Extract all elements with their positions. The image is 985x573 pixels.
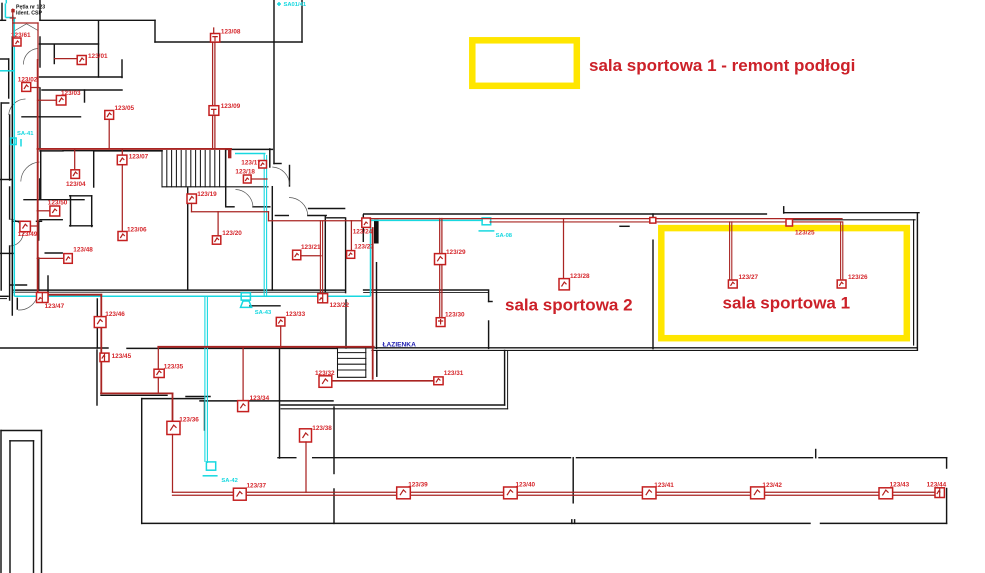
svg-text:123/35: 123/35 bbox=[164, 364, 184, 371]
svg-text:123/32: 123/32 bbox=[315, 370, 335, 377]
svg-text:123/20: 123/20 bbox=[222, 230, 242, 237]
svg-text:123/23: 123/23 bbox=[354, 244, 374, 251]
svg-text:123/21: 123/21 bbox=[301, 244, 321, 251]
svg-text:123/24: 123/24 bbox=[353, 228, 373, 235]
svg-text:ŁAZIENKA: ŁAZIENKA bbox=[383, 342, 417, 349]
svg-text:Ident. CSP: Ident. CSP bbox=[16, 11, 42, 17]
svg-text:123/47: 123/47 bbox=[45, 303, 65, 310]
svg-text:sala sportowa 1: sala sportowa 1 bbox=[723, 294, 851, 313]
svg-text:123/30: 123/30 bbox=[445, 312, 465, 319]
svg-text:123/48: 123/48 bbox=[73, 246, 93, 253]
svg-text:123/25: 123/25 bbox=[795, 230, 815, 237]
svg-text:SA-08: SA-08 bbox=[496, 233, 513, 239]
svg-text:123/61: 123/61 bbox=[11, 32, 31, 39]
svg-text:123/36: 123/36 bbox=[179, 416, 199, 423]
svg-text:123/08: 123/08 bbox=[221, 29, 241, 36]
svg-text:123/05: 123/05 bbox=[115, 105, 135, 112]
svg-text:123/31: 123/31 bbox=[444, 370, 464, 377]
svg-text:123/06: 123/06 bbox=[127, 226, 147, 233]
svg-text:123/01: 123/01 bbox=[88, 53, 108, 60]
svg-text:123/28: 123/28 bbox=[570, 273, 590, 280]
svg-text:123/43: 123/43 bbox=[890, 481, 910, 488]
svg-text:sala sportowa 1 - remont podło: sala sportowa 1 - remont podłogi bbox=[589, 56, 855, 75]
svg-text:SA-42: SA-42 bbox=[221, 478, 237, 484]
svg-text:123/22: 123/22 bbox=[330, 302, 350, 309]
svg-text:123/09: 123/09 bbox=[221, 103, 241, 110]
svg-text:SA-41: SA-41 bbox=[17, 131, 34, 137]
svg-text:123/29: 123/29 bbox=[446, 249, 466, 256]
svg-text:123/46: 123/46 bbox=[105, 311, 125, 318]
svg-text:123/26: 123/26 bbox=[848, 274, 868, 281]
svg-text:123/49: 123/49 bbox=[18, 231, 38, 238]
svg-text:123/07: 123/07 bbox=[129, 154, 149, 161]
svg-text:123/19: 123/19 bbox=[197, 191, 217, 198]
svg-text:123/42: 123/42 bbox=[762, 482, 782, 489]
svg-text:SA-43: SA-43 bbox=[255, 310, 272, 316]
svg-text:123/41: 123/41 bbox=[654, 482, 674, 489]
svg-text:123/27: 123/27 bbox=[739, 274, 759, 281]
svg-text:123/40: 123/40 bbox=[516, 482, 536, 489]
svg-text:123/39: 123/39 bbox=[408, 482, 428, 489]
svg-text:123/44: 123/44 bbox=[927, 482, 947, 489]
svg-text:123/38: 123/38 bbox=[312, 425, 332, 432]
svg-text:SA01/41: SA01/41 bbox=[284, 2, 307, 8]
svg-text:123/34: 123/34 bbox=[250, 395, 270, 402]
svg-text:123/37: 123/37 bbox=[247, 483, 267, 490]
svg-text:123/50: 123/50 bbox=[48, 200, 68, 207]
svg-text:123/45: 123/45 bbox=[112, 353, 132, 360]
svg-text:123/18: 123/18 bbox=[235, 169, 255, 176]
svg-text:123/03: 123/03 bbox=[61, 90, 81, 97]
svg-text:123/33: 123/33 bbox=[286, 311, 306, 318]
svg-text:123/02: 123/02 bbox=[18, 77, 38, 84]
svg-text:123/17: 123/17 bbox=[241, 160, 261, 167]
svg-text:123/04: 123/04 bbox=[66, 181, 86, 188]
svg-text:sala sportowa 2: sala sportowa 2 bbox=[505, 296, 633, 315]
